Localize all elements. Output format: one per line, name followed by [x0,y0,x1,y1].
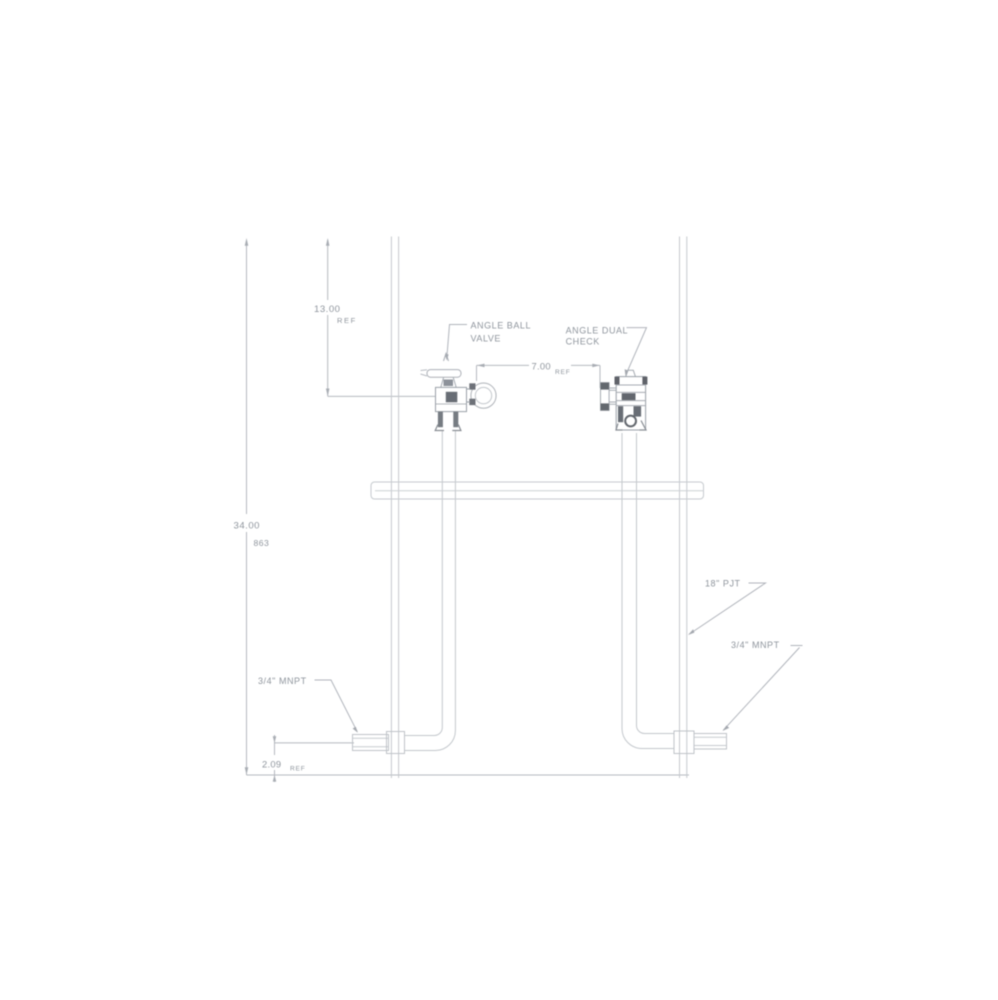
svg-text:ANGLE BALL: ANGLE BALL [471,320,532,330]
svg-text:REF: REF [555,369,571,376]
svg-text:18" PJT: 18" PJT [705,578,741,588]
svg-text:2.09: 2.09 [262,758,281,769]
svg-text:863: 863 [254,538,270,548]
svg-text:VALVE: VALVE [471,333,501,343]
svg-text:ANGLE DUAL: ANGLE DUAL [566,325,629,335]
svg-text:13.00: 13.00 [314,304,341,315]
svg-text:REF: REF [337,316,357,325]
svg-text:3/4" MNPT: 3/4" MNPT [731,640,780,650]
svg-text:3/4" MNPT: 3/4" MNPT [258,676,307,686]
svg-text:CHECK: CHECK [566,337,600,347]
svg-text:REF: REF [290,765,306,772]
svg-text:7.00: 7.00 [532,361,551,372]
svg-text:34.00: 34.00 [234,520,261,531]
